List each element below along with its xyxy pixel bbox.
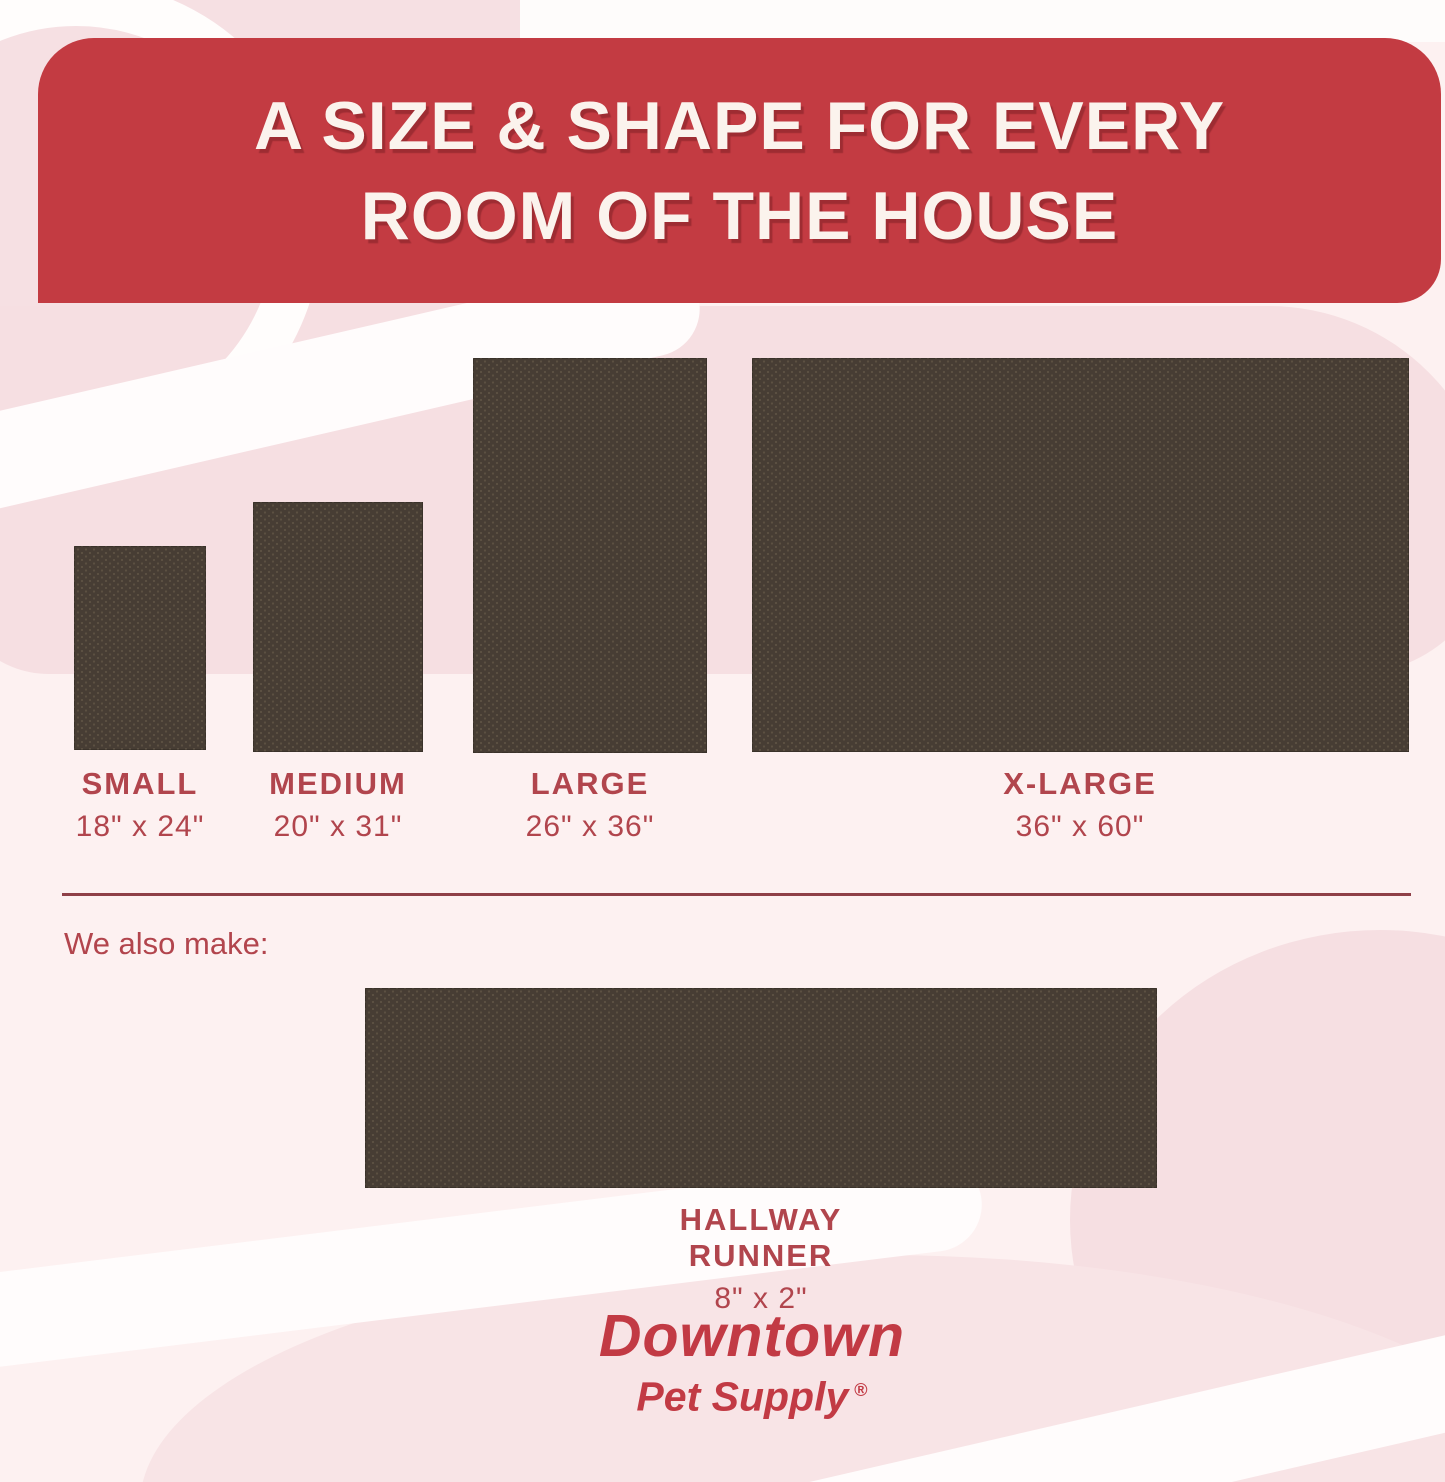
hallway-runner-label: HALLWAY RUNNER 8" x 2" bbox=[611, 1202, 911, 1316]
deco-white-strip-top-right bbox=[520, 0, 1445, 42]
size-comparison-infographic: A SIZE & SHAPE FOR EVERY ROOM OF THE HOU… bbox=[0, 0, 1445, 1482]
x-large-size-name: X-LARGE bbox=[930, 766, 1230, 802]
large-size-name: LARGE bbox=[440, 766, 740, 802]
medium-mat-swatch bbox=[253, 502, 423, 752]
large-size-dimensions: 26" x 36" bbox=[440, 810, 740, 844]
large-mat-swatch bbox=[473, 358, 707, 753]
section-divider-line bbox=[62, 893, 1411, 896]
brand-logo: Downtown Pet Supply® bbox=[422, 1306, 1082, 1421]
brand-name-text: Downtown bbox=[422, 1306, 1082, 1366]
hallway-runner-mat-swatch bbox=[365, 988, 1157, 1188]
small-mat-swatch bbox=[74, 546, 206, 750]
brand-subtitle-text: Pet Supply® bbox=[422, 1366, 1082, 1421]
registered-trademark-icon: ® bbox=[854, 1380, 867, 1400]
banner-title-line-1: A SIZE & SHAPE FOR EVERY bbox=[254, 81, 1225, 171]
x-large-size-label: X-LARGE 36" x 60" bbox=[930, 766, 1230, 844]
header-banner: A SIZE & SHAPE FOR EVERY ROOM OF THE HOU… bbox=[38, 38, 1441, 303]
brand-subtitle-label: Pet Supply bbox=[636, 1374, 848, 1420]
x-large-size-dimensions: 36" x 60" bbox=[930, 810, 1230, 844]
we-also-make-text: We also make: bbox=[64, 926, 268, 962]
banner-title-line-2: ROOM OF THE HOUSE bbox=[361, 171, 1118, 261]
hallway-runner-name: HALLWAY RUNNER bbox=[611, 1202, 911, 1274]
large-size-label: LARGE 26" x 36" bbox=[440, 766, 740, 844]
x-large-mat-swatch bbox=[752, 358, 1409, 752]
